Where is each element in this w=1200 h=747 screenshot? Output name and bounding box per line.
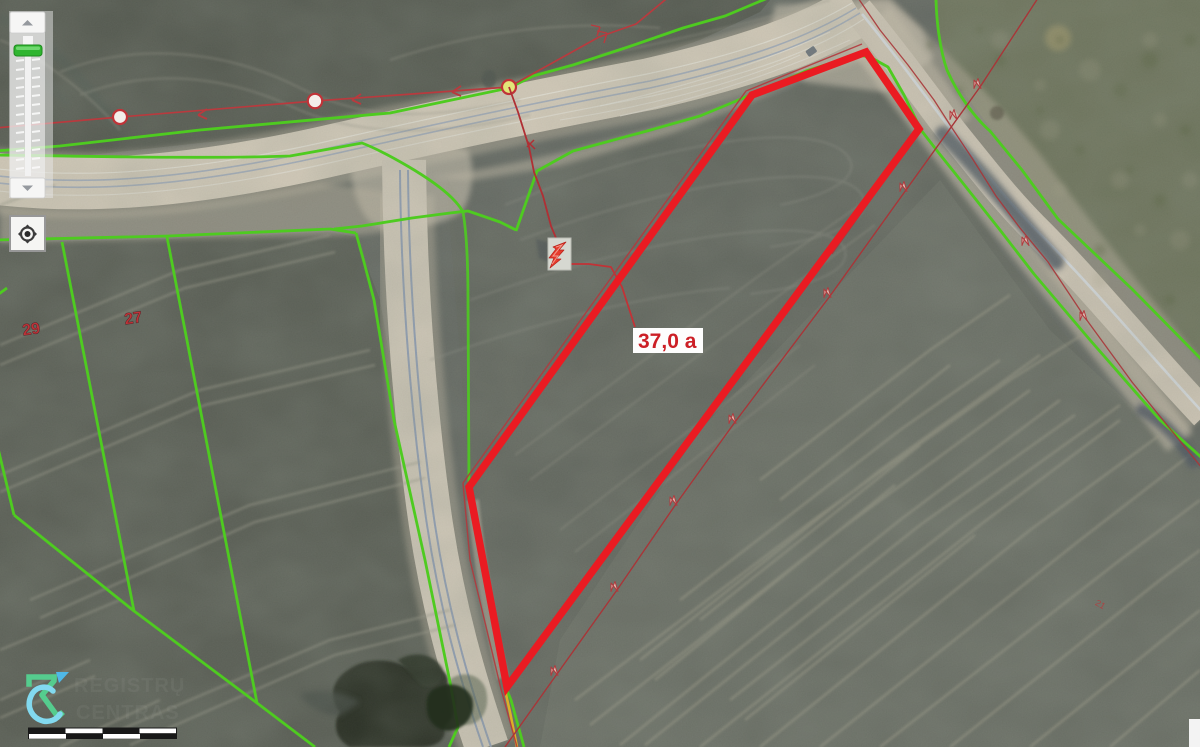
svg-text:CENTRAS: CENTRAS [76,702,180,724]
svg-text:29: 29 [21,320,41,339]
svg-text:27: 27 [123,309,143,328]
svg-text:37,0 a: 37,0 a [638,330,697,353]
svg-text:REGISTRŲ: REGISTRŲ [74,675,185,697]
